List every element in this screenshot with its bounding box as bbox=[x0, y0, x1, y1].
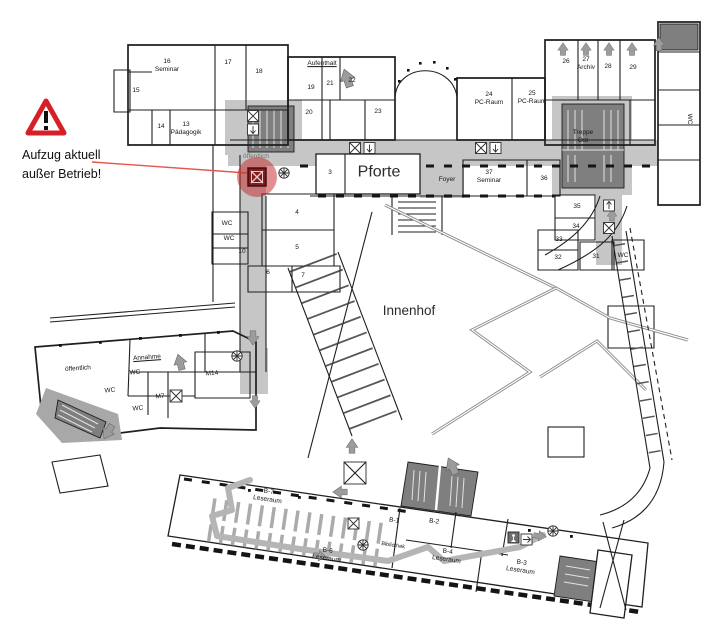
room-label-10: 10 bbox=[238, 248, 245, 256]
room-label-13: 13 Pädagogik bbox=[171, 121, 202, 137]
warning-triangle-icon bbox=[28, 101, 64, 133]
area-label-treppe-ost: Treppe Ost bbox=[573, 129, 593, 145]
spiral-stairs-icon bbox=[279, 168, 289, 178]
floorplan-drawing bbox=[0, 0, 705, 638]
room-label-18: 18 bbox=[255, 68, 262, 76]
room-label-21: 21 bbox=[326, 80, 333, 88]
room-label-36: 36 bbox=[540, 175, 547, 183]
floorplan-viewport: 16 Seminar 15 17 18 14 13 Pädagogik Aufe… bbox=[0, 0, 705, 638]
room-label-b2: B-2 bbox=[428, 517, 439, 526]
room-label-m14: M14 bbox=[205, 370, 218, 379]
elevator-icon bbox=[476, 143, 487, 154]
room-label-29: 29 bbox=[629, 64, 636, 72]
room-label-wc-west2: WC bbox=[224, 235, 235, 243]
room-label-5: 5 bbox=[295, 244, 299, 252]
room-label-m7: M7 bbox=[155, 393, 165, 401]
area-label-foyer: Foyer bbox=[439, 176, 456, 184]
room-label-33: 33 bbox=[555, 236, 562, 244]
room-label-3: 3 bbox=[328, 169, 332, 177]
room-label-wc-sw3: WC bbox=[132, 405, 143, 414]
courtyard-terrace-steps bbox=[288, 252, 402, 436]
room-label-23: 23 bbox=[374, 108, 381, 116]
elevator-icon bbox=[604, 223, 615, 234]
area-label-innenhof: Innenhof bbox=[383, 303, 436, 319]
column-dots bbox=[59, 61, 573, 538]
room-label-4: 4 bbox=[295, 209, 299, 217]
room-label-b1: B-1 bbox=[388, 516, 399, 525]
area-label-oeffentlich-north: öffentlich bbox=[243, 153, 269, 161]
room-label-14: 14 bbox=[157, 123, 164, 131]
elevator-icon bbox=[248, 111, 259, 122]
room-label-wc-west1: WC bbox=[222, 220, 233, 228]
room-label-35: 35 bbox=[573, 203, 580, 211]
room-label-7: 7 bbox=[301, 272, 305, 280]
room-label-32: 32 bbox=[554, 254, 561, 262]
area-label-aufenthalt: Aufenthalt bbox=[307, 60, 336, 68]
room-label-19: 19 bbox=[307, 84, 314, 92]
room-label-22: 22 bbox=[348, 77, 355, 85]
room-label-27-archiv: 27 Archiv bbox=[577, 56, 595, 72]
room-label-wc-fareast: WC bbox=[685, 114, 693, 125]
leader-line bbox=[92, 162, 247, 173]
warning-annotation-text: Aufzug aktuell außer Betrieb! bbox=[22, 146, 101, 184]
room-label-34: 34 bbox=[572, 223, 579, 231]
room-label-16: 16 Seminar bbox=[155, 58, 179, 74]
room-label-28: 28 bbox=[604, 63, 611, 71]
southwest-wing bbox=[35, 303, 256, 493]
room-label-31: 31 bbox=[592, 253, 599, 261]
room-label-25-pc-raum: 25 PC-Raum bbox=[518, 90, 547, 106]
spiral-stairs-icon bbox=[548, 526, 558, 536]
room-label-15: 15 bbox=[132, 87, 139, 95]
area-label-pforte: Pforte bbox=[358, 162, 401, 181]
room-label-26: 26 bbox=[562, 58, 569, 66]
room-label-wc-sw2: WC bbox=[104, 387, 115, 396]
elevator-highlight bbox=[92, 157, 277, 197]
elevator-icon bbox=[350, 143, 361, 154]
room-label-37-seminar: 37 Seminar bbox=[477, 169, 501, 185]
room-label-24-pc-raum: 24 PC-Raum bbox=[475, 91, 504, 107]
spiral-stairs-icon bbox=[232, 351, 242, 361]
room-label-wc-sw1: WC bbox=[129, 369, 140, 378]
room-label-20: 20 bbox=[305, 109, 312, 117]
room-label-wc-east: WC bbox=[618, 252, 629, 260]
room-label-6: 6 bbox=[266, 269, 270, 277]
stair-core-northeast bbox=[660, 24, 698, 50]
stair-core-treppe-ost bbox=[562, 104, 624, 188]
room-label-17: 17 bbox=[224, 59, 231, 67]
spiral-stairs-icon bbox=[358, 540, 368, 550]
